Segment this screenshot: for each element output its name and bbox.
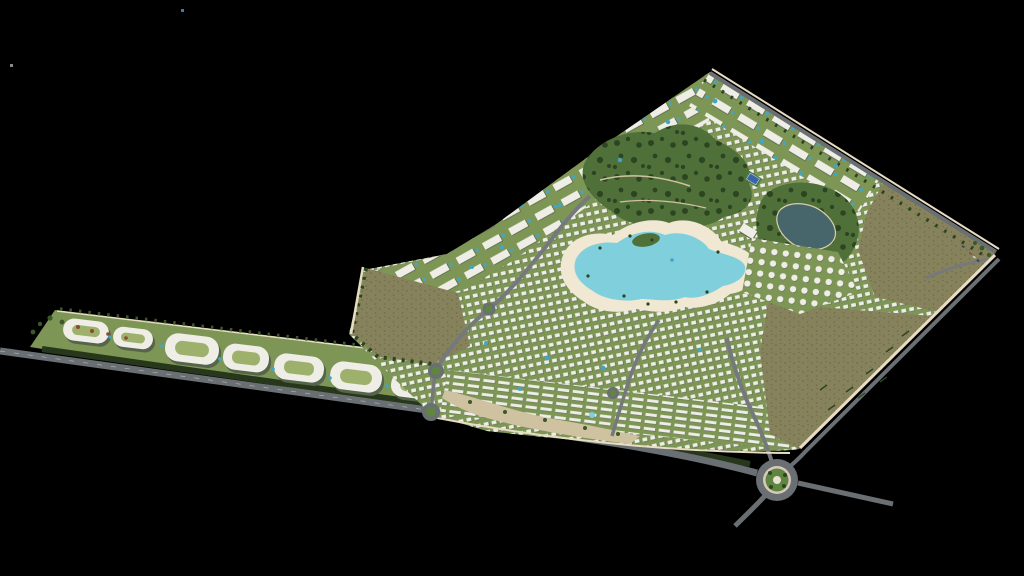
splash-pad: [589, 412, 595, 418]
grand-roundabout: [756, 459, 798, 501]
small-roundabout: [422, 403, 440, 421]
small-roundabout: [428, 363, 444, 379]
masterplan-render: [0, 0, 1024, 576]
artifact-dot-blue: [181, 9, 184, 12]
roundabout-garden: [610, 390, 616, 396]
small-roundabout: [607, 387, 619, 399]
roundabout-garden: [426, 407, 436, 417]
small-roundabout: [483, 303, 496, 316]
artifact-dot-gray: [10, 64, 13, 67]
roundabout-garden: [432, 367, 441, 376]
roundabout-monument: [773, 476, 781, 484]
roundabout-garden: [486, 306, 493, 313]
